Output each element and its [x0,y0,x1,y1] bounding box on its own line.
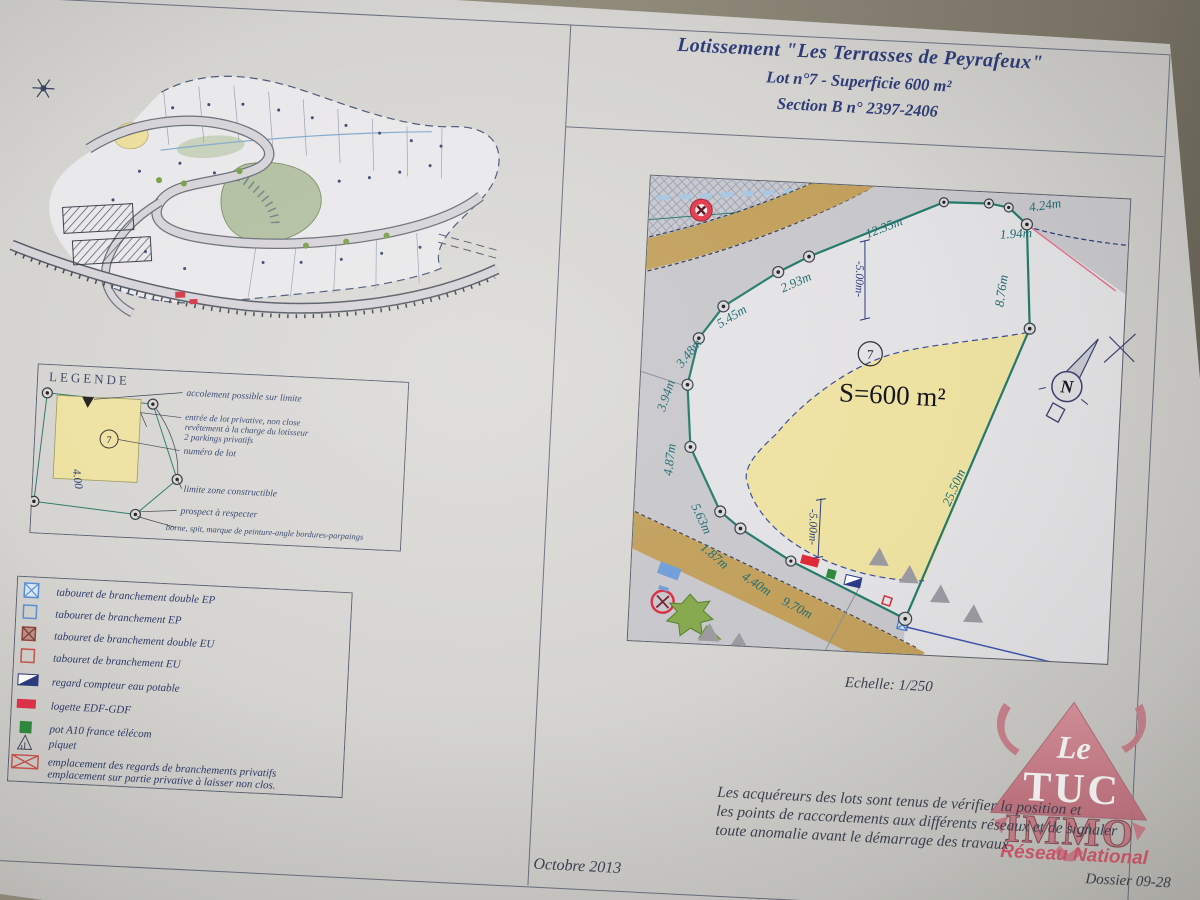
piquet-legend-icon [18,735,33,750]
measure-8-76: 8.76m [991,274,1010,308]
emplacement-legend-icon [12,755,39,769]
legend-box: LEGENDE 7 4.00 [29,363,409,551]
legend-lot-number: 7 [106,435,112,446]
logette-legend-icon [17,699,36,709]
symbol-label-8: piquet [48,738,78,751]
regard-eau-icon [844,575,862,588]
north-label: N [1059,376,1075,397]
paper-sheet: Lotissement "Les Terrasses de Peyrafeux"… [0,0,1200,900]
pot-telecom-icon [826,569,837,580]
symbol-label-5: regard compteur eau potable [52,676,180,694]
area-label: S=600 m² [838,377,946,412]
overview-site-plan [1,45,515,369]
document-content: Lotissement "Les Terrasses de Peyrafeux"… [0,0,1200,900]
overview-track-dashes [438,234,502,259]
legend-dimension: 4.00 [70,468,84,490]
symbol-label-4: tabouret de branchement EU [53,653,182,671]
legend-lot-rect [53,395,141,482]
symbol-label-7: pot A10 france télécom [48,723,152,740]
legend-item-numero: numéro de lot [183,447,236,460]
legend-item-parkings: 2 parkings privatifs [184,432,254,445]
legend-item-limite: limite zone constructible [183,485,277,500]
symbol-label-6: logette EDF-GDF [50,700,131,716]
logo-right-swoosh [1121,703,1147,754]
compass-star-icon [32,79,55,98]
lot-number-label: 7 [867,347,875,362]
tabouret-double-ep-legend-icon [24,583,39,598]
legend-item-borne: borne, spit, marque de peinture-angle bo… [166,522,365,542]
symbol-label-3: tabouret de branchement double EU [54,631,216,651]
photographed-plan-document: Lotissement "Les Terrasses de Peyrafeux"… [0,0,1200,900]
water-manhole-icon [690,199,713,222]
symbol-label-2: tabouret de branchement EP [55,609,182,627]
symbols-legend-box: tabouret de branchement double EP tabour… [7,576,353,798]
legend-item-prospect: prospect à respecter [179,507,258,521]
measure-1-94: 1.94m [1000,225,1033,242]
logo-le: Le [1055,729,1091,767]
tabouret-eu-legend-icon [21,649,35,663]
logo-left-swoosh [995,703,1022,756]
setback-label-top: -5.00m- [853,261,866,297]
tabouret-ep-legend-icon [23,605,37,619]
lot-plan: -5.00m- -5.00m- 12.35m 2.93m 5.45m 3.48m… [627,175,1132,665]
legend-item-accolement: accolement possible sur limite [186,389,302,405]
symbol-label-1: tabouret de branchement double EP [56,587,216,607]
pot-telecom-legend-icon [19,721,32,734]
buildable-zone-yellow [741,319,1027,586]
tabouret-double-eu-legend-icon [22,627,36,641]
tabouret-eu-icon [882,596,892,606]
north-arrow-icon: N [1037,336,1098,424]
setback-label-bottom: -5.00m- [806,509,819,545]
legend-title: LEGENDE [49,369,131,388]
regard-eau-legend-icon [18,674,39,686]
